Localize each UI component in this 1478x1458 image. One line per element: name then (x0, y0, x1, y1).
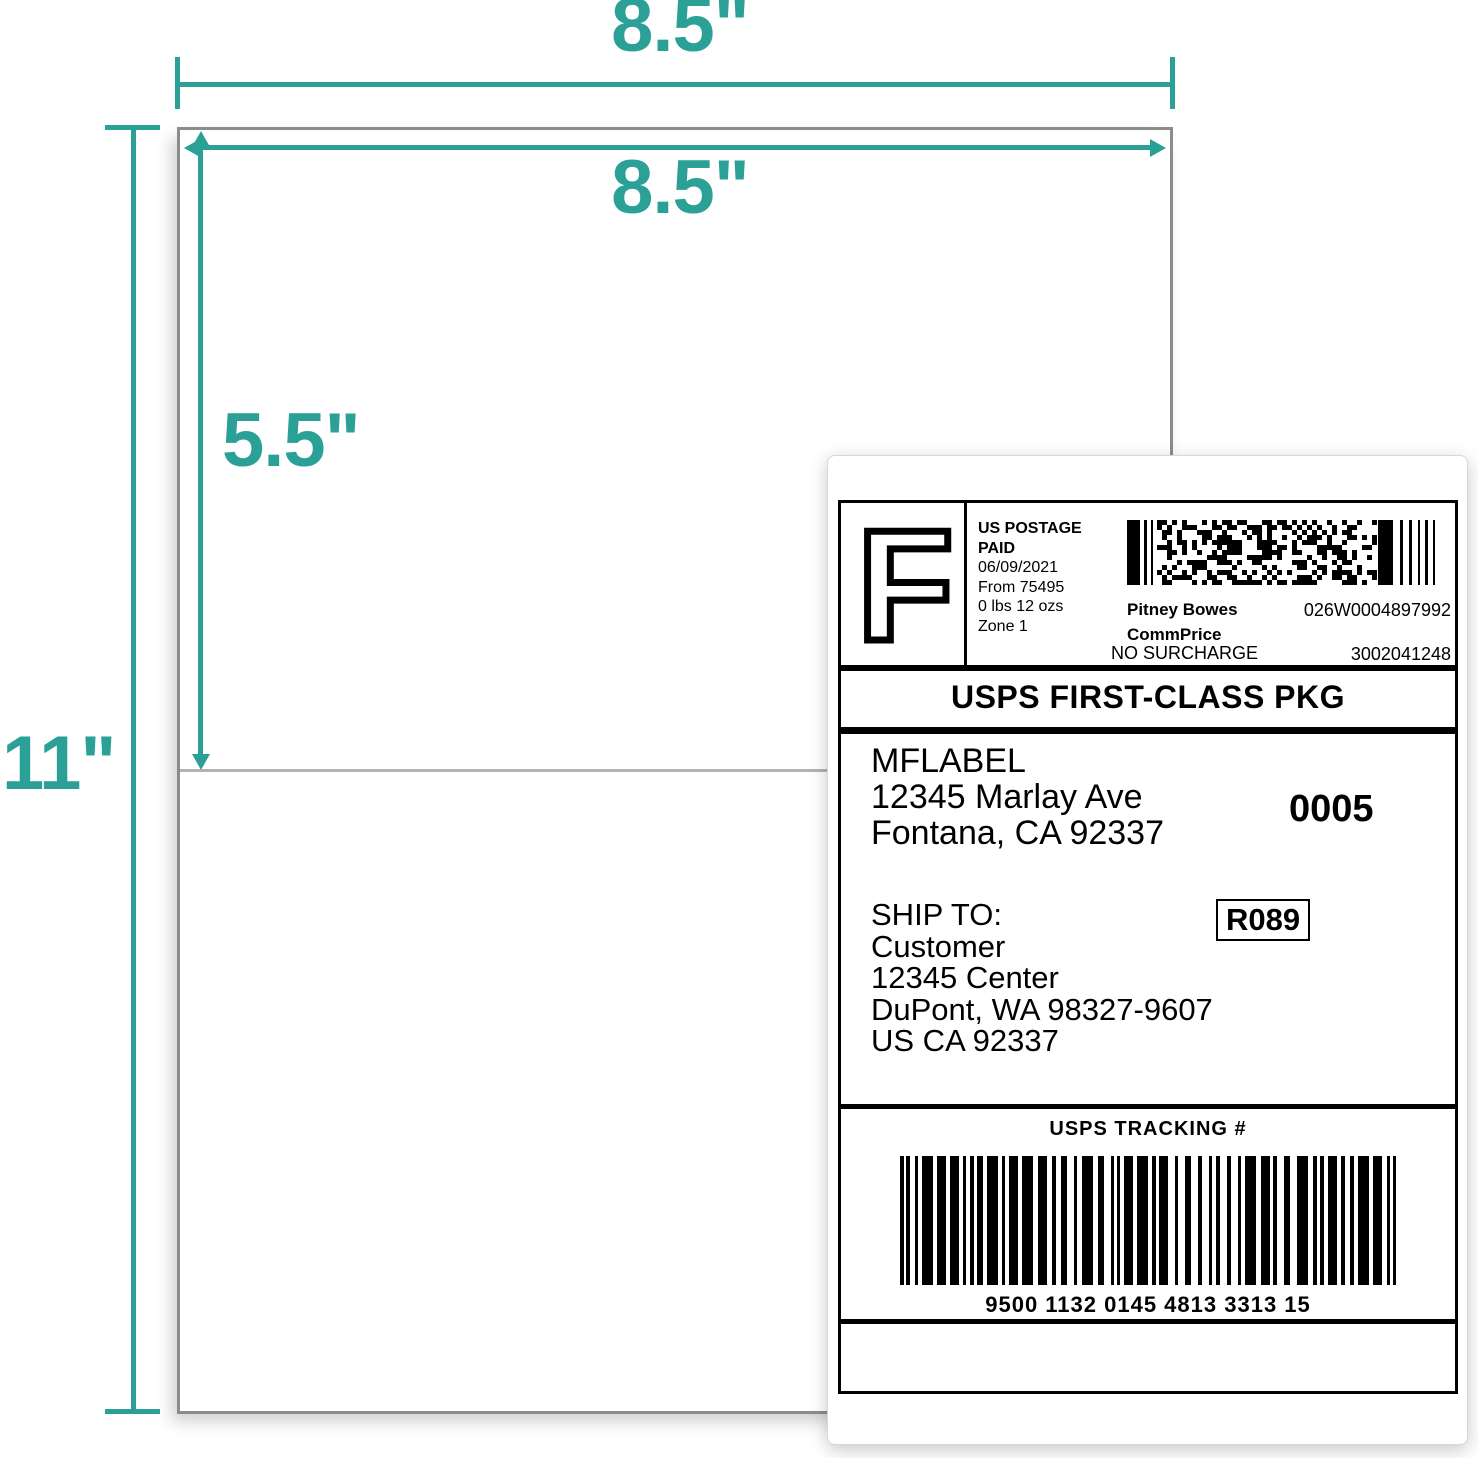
postage-surcharge: NO SURCHARGE (1111, 643, 1258, 664)
tracking-number: 9500 1132 0145 4813 3313 15 (841, 1292, 1455, 1318)
address-section: MFLABEL 12345 Marlay Ave Fontana, CA 923… (838, 734, 1458, 1104)
half-height-up-arrow-icon (192, 131, 210, 147)
postage-meter-right: Pitney Bowes 026W0004897992 CommPrice NO… (1127, 503, 1455, 665)
inner-width-right-arrow-icon (1150, 139, 1166, 157)
ship-to-heading: SHIP TO: (871, 899, 1213, 931)
postage-meter-block: F US POSTAGE PAID 06/09/2021 From 75495 … (838, 500, 1458, 668)
tracking-barcode (900, 1156, 1396, 1285)
half-height-label: 5.5" (222, 403, 360, 479)
outer-width-left-cap (175, 57, 180, 109)
tracking-heading: USPS TRACKING # (841, 1118, 1455, 1141)
postage-2d-barcode (1127, 520, 1444, 585)
postage-carrier-row: Pitney Bowes 026W0004897992 (1127, 600, 1451, 621)
batch-number: 0005 (1289, 788, 1374, 831)
sender-name: MFLABEL (871, 743, 1164, 779)
sender-address: MFLABEL 12345 Marlay Ave Fontana, CA 923… (871, 743, 1164, 851)
outer-width-dim-line (177, 82, 1173, 87)
ship-to-name: Customer (871, 931, 1213, 963)
page-height-dim-line (131, 127, 136, 1414)
postage-origin: From 75495 (978, 578, 1127, 598)
postage-info: US POSTAGE PAID 06/09/2021 From 75495 0 … (967, 503, 1127, 665)
ship-to-street: 12345 Center (871, 962, 1213, 994)
postage-serial: 3002041248 (1351, 644, 1451, 665)
product-diagram: 8.5" 8.5" 5.5" 11" F US POSTAGE PAID 06/… (0, 0, 1478, 1458)
postage-heading-line1: US POSTAGE (978, 519, 1127, 539)
postage-f-stamp-icon: F (851, 514, 955, 654)
sender-city: Fontana, CA 92337 (871, 815, 1164, 851)
page-height-top-cap (105, 125, 160, 130)
postage-f-letter: F (857, 514, 954, 654)
postage-rate-tier: CommPrice (1127, 625, 1221, 645)
page-height-bottom-cap (105, 1409, 160, 1414)
sender-street: 12345 Marlay Ave (871, 779, 1164, 815)
postage-carrier: Pitney Bowes (1127, 600, 1238, 621)
label-footer-box (838, 1324, 1458, 1394)
ship-to-country: US CA 92337 (871, 1025, 1213, 1057)
inner-width-label: 8.5" (480, 150, 880, 226)
postage-date: 06/09/2021 (978, 558, 1127, 578)
ship-to-city: DuPont, WA 98327-9607 (871, 994, 1213, 1026)
postage-weight: 0 lbs 12 ozs (978, 597, 1127, 617)
outer-width-right-cap (1170, 57, 1175, 109)
half-height-dim-line (198, 144, 203, 756)
tracking-section: USPS TRACKING # 9500 1132 0145 4813 3313… (838, 1104, 1458, 1324)
outer-width-label: 8.5" (480, 0, 880, 64)
ship-to-address: SHIP TO: Customer 12345 Center DuPont, W… (871, 899, 1213, 1057)
half-height-down-arrow-icon (192, 754, 210, 770)
postage-meter-id: 026W0004897992 (1304, 600, 1451, 621)
page-height-label: 11" (2, 726, 115, 802)
route-code-badge: R089 (1216, 899, 1310, 941)
postage-stamp-cell: F (841, 503, 967, 665)
postage-heading-line2: PAID (978, 539, 1127, 559)
service-class-banner: USPS FIRST-CLASS PKG (838, 668, 1458, 734)
shipping-label-sample: F US POSTAGE PAID 06/09/2021 From 75495 … (827, 455, 1468, 1445)
postage-zone: Zone 1 (978, 617, 1127, 637)
